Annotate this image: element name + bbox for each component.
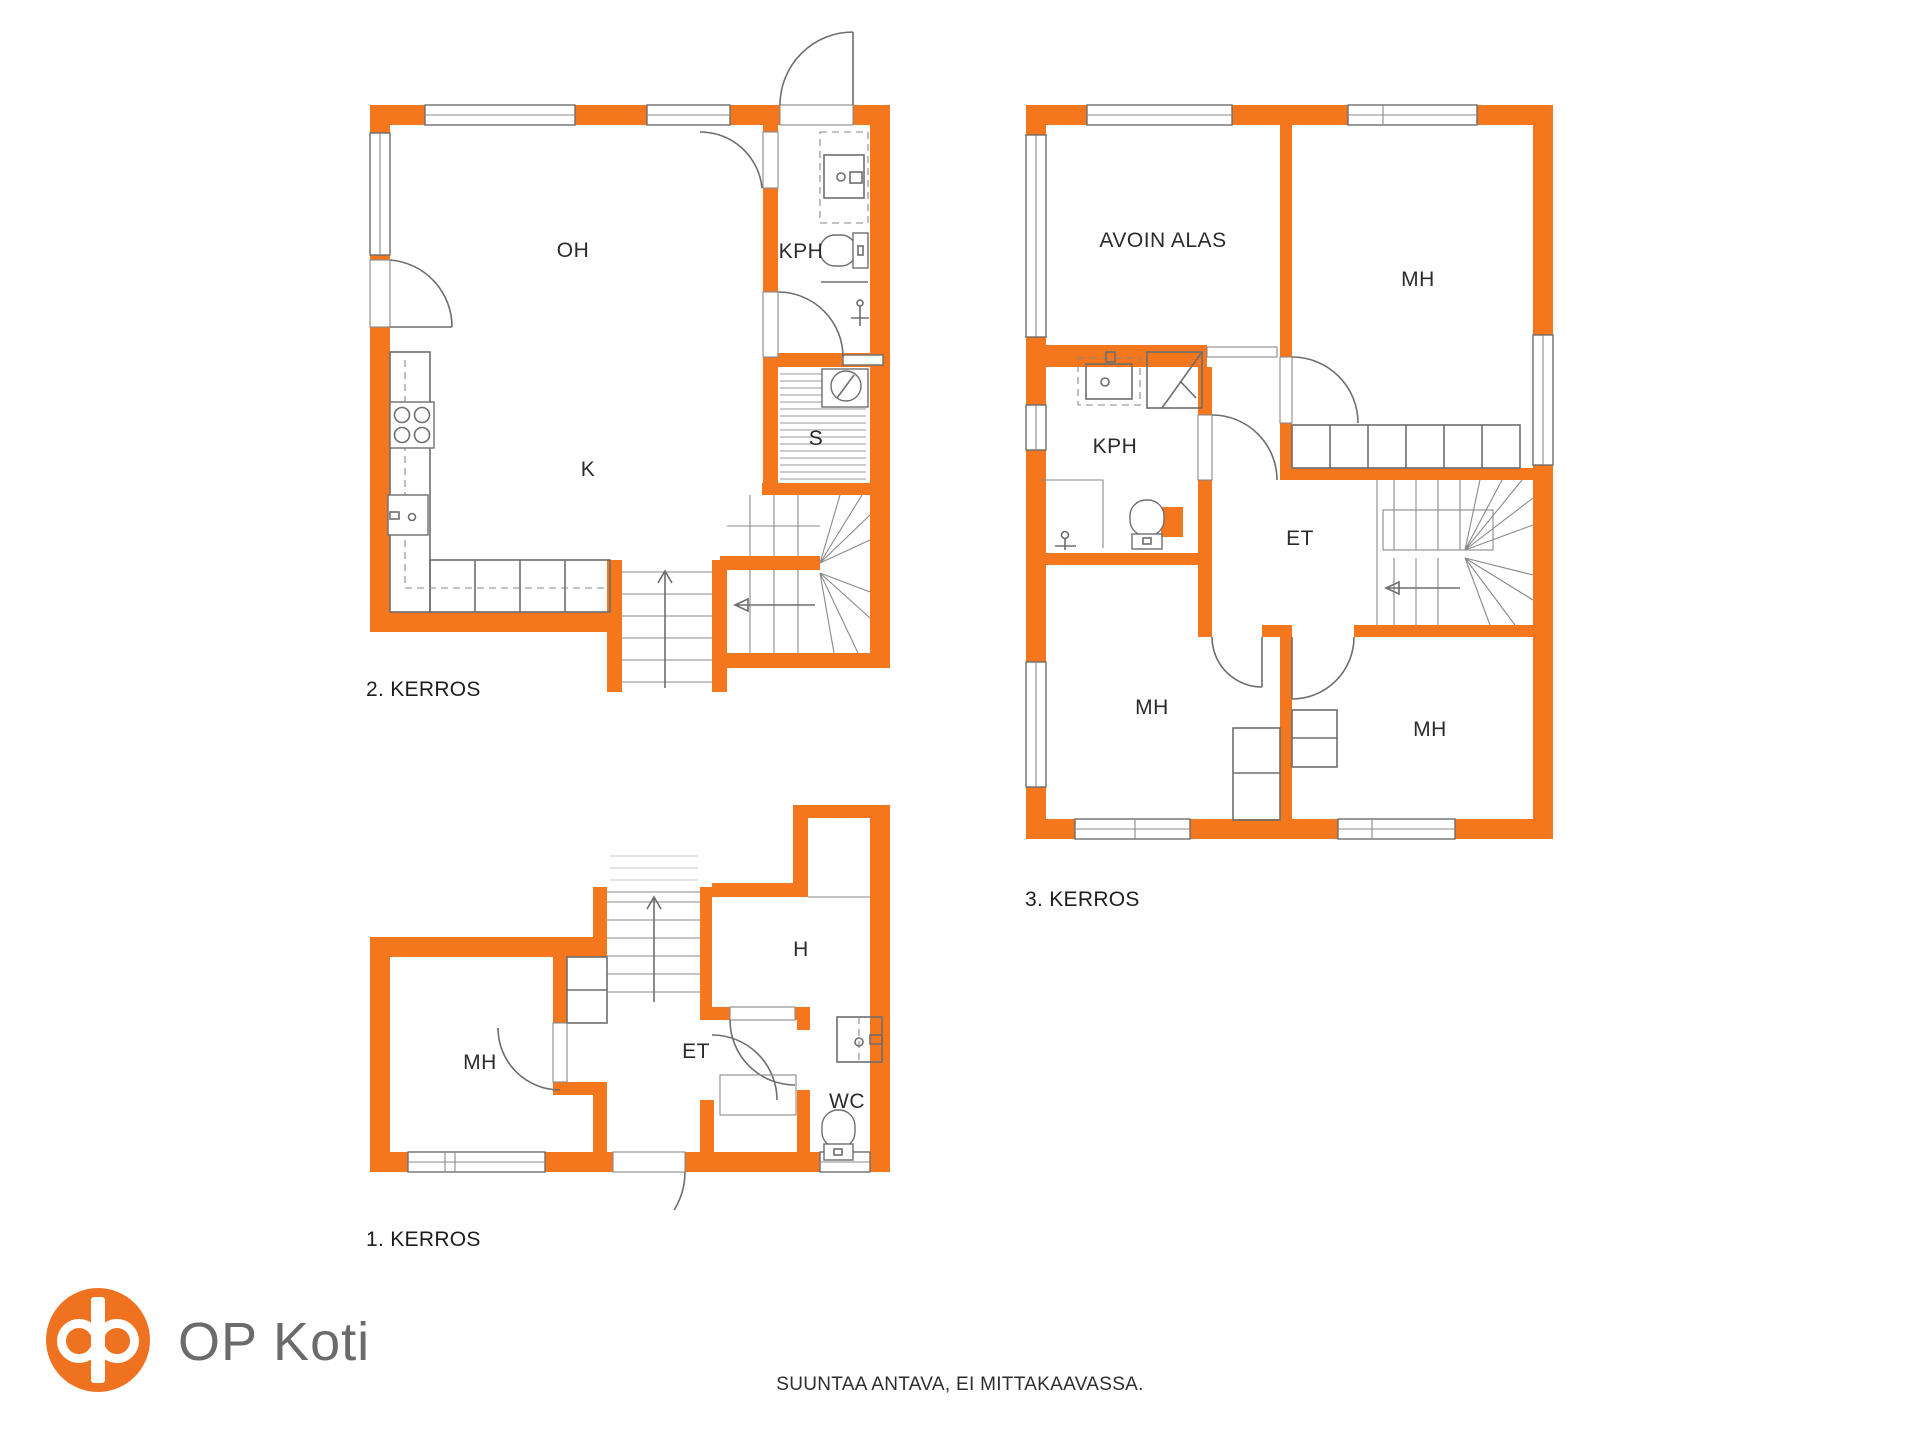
door-arc-kph3 (1198, 415, 1277, 480)
room-label-mh-right: MH (1413, 718, 1447, 741)
closet-row (1292, 425, 1520, 468)
walls (370, 105, 890, 692)
railing-opening (1207, 347, 1277, 357)
kitchen-counter (390, 352, 610, 612)
entrance-door (613, 1152, 685, 1210)
room-label-mh-left: MH (1135, 696, 1169, 719)
door-arc-mh1 (498, 1023, 567, 1090)
room-label-k: K (581, 458, 596, 481)
brand-name: OP Koti (178, 1311, 370, 1373)
room-label-avoin: AVOIN ALAS (1099, 229, 1226, 252)
shower-icon (1055, 532, 1076, 551)
windows (370, 105, 883, 365)
mh-closet (567, 957, 607, 1023)
room-label-et1: ET (682, 1040, 710, 1063)
room-label-mh-top: MH (1401, 268, 1435, 291)
floor-plan-2: OH KPH K S (360, 20, 900, 720)
room-label-kph2: KPH (779, 240, 824, 263)
room-label-wc: WC (829, 1090, 865, 1113)
floor3-caption: 3. KERROS (1025, 888, 1140, 912)
stairs-winder (727, 495, 870, 653)
door-arc-mh-top (1280, 357, 1358, 423)
room-label-kph3: KPH (1093, 435, 1138, 458)
floor2-caption: 2. KERROS (366, 678, 481, 702)
stairs-straight (622, 571, 712, 688)
door-arc-oh-left (370, 260, 452, 327)
stove-icon (390, 402, 434, 448)
toilet-icon (820, 233, 868, 268)
toilet-icon (1130, 500, 1164, 549)
entrance-door (780, 32, 853, 125)
floor-plan-3: AVOIN ALAS MH KPH ET MH MH (1010, 80, 1570, 860)
door-arc-corridor (712, 1035, 796, 1115)
sauna-stove-icon (831, 371, 861, 401)
door-arc-hall (700, 132, 778, 188)
room-label-et3: ET (1286, 527, 1314, 550)
floorplan-page: OH KPH K S 2. KERROS (0, 0, 1920, 1440)
room-label-mh1: MH (463, 1051, 497, 1074)
door-arc-mh-left (1212, 637, 1262, 687)
toilet-icon (822, 1110, 855, 1160)
stairs-winder3 (1377, 480, 1533, 625)
door-arc-h (730, 1007, 795, 1085)
room-label-s: S (809, 427, 824, 450)
floor1-caption: 1. KERROS (366, 1228, 481, 1252)
kph-fixtures (820, 132, 869, 326)
door-arc-kph (763, 292, 843, 357)
room-label-oh: OH (557, 239, 590, 262)
walls (370, 805, 890, 1172)
door-arc-mh-right (1292, 637, 1354, 699)
room-label-h: H (793, 938, 809, 961)
stairs-up (607, 856, 700, 1002)
sauna (780, 369, 868, 479)
floor-plan-1: MH ET H WC (360, 780, 900, 1210)
walls (1026, 105, 1553, 839)
sink-icon (388, 495, 428, 535)
disclaimer-text: SUUNTAA ANTAVA, EI MITTAKAAVASSA. (0, 1374, 1920, 1396)
shower-icon (851, 300, 869, 326)
